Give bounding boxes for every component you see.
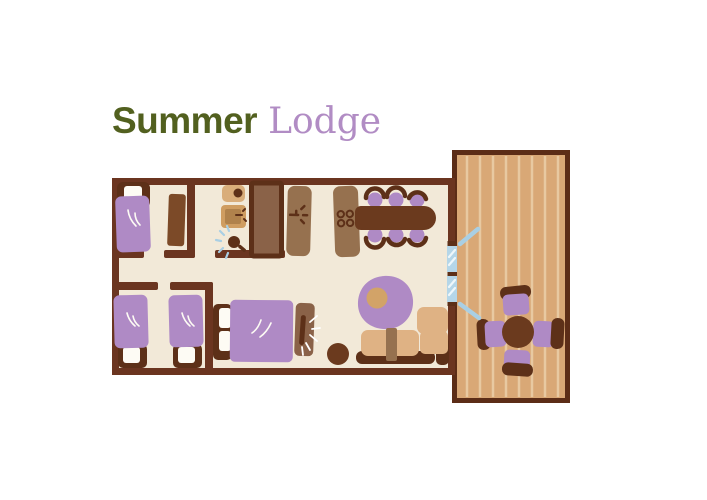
counter-top bbox=[286, 186, 312, 257]
wardrobe bbox=[167, 194, 186, 247]
deck-chair-back bbox=[502, 362, 534, 377]
deck-round-table bbox=[502, 316, 534, 348]
wall-seg-bed2-a bbox=[112, 282, 158, 290]
single-bed-3 bbox=[168, 295, 203, 368]
deck-chair-top bbox=[499, 284, 531, 316]
toilet bbox=[222, 185, 245, 202]
sink-counter bbox=[286, 186, 312, 257]
basin-bowl bbox=[225, 209, 241, 224]
door-panel-bottom bbox=[447, 276, 457, 302]
double-bed bbox=[213, 300, 293, 363]
partition-bedroom2 bbox=[205, 282, 213, 375]
floorplan-drawing bbox=[0, 0, 707, 500]
shower-cubicle bbox=[252, 183, 282, 256]
single-bed-1 bbox=[115, 182, 151, 253]
sofa-corner-cushion bbox=[420, 331, 448, 354]
deck-chair-left bbox=[476, 319, 506, 351]
pillow bbox=[219, 308, 231, 328]
wall-right-lower bbox=[448, 301, 455, 375]
pillow bbox=[123, 347, 140, 363]
washbasin bbox=[221, 205, 246, 228]
single-bed-2 bbox=[113, 295, 148, 368]
blanket bbox=[230, 300, 294, 363]
wall-bottom bbox=[112, 368, 455, 375]
door-panel-top bbox=[447, 246, 457, 272]
rug-center bbox=[367, 288, 388, 309]
wall-seg-bed1-b bbox=[164, 250, 195, 258]
deck-chair-right bbox=[532, 318, 564, 350]
pillow bbox=[219, 331, 231, 351]
deck-chair-seat bbox=[502, 293, 529, 316]
rug bbox=[358, 276, 413, 329]
dining-table bbox=[355, 206, 436, 230]
blanket bbox=[115, 195, 151, 252]
pillow bbox=[178, 347, 195, 363]
chair-seats bbox=[368, 193, 425, 208]
deck-chair-bottom bbox=[502, 349, 534, 377]
deck-chair-back bbox=[550, 318, 565, 350]
partition-bedroom1 bbox=[187, 178, 195, 258]
toilet-lid bbox=[234, 189, 243, 198]
wall-right-upper bbox=[448, 178, 455, 246]
stool bbox=[327, 343, 349, 365]
sofa-back-cushion bbox=[417, 307, 448, 334]
summer-lodge-floorplan-page: Summer Lodge bbox=[0, 0, 707, 500]
sofa-divider bbox=[386, 328, 397, 361]
